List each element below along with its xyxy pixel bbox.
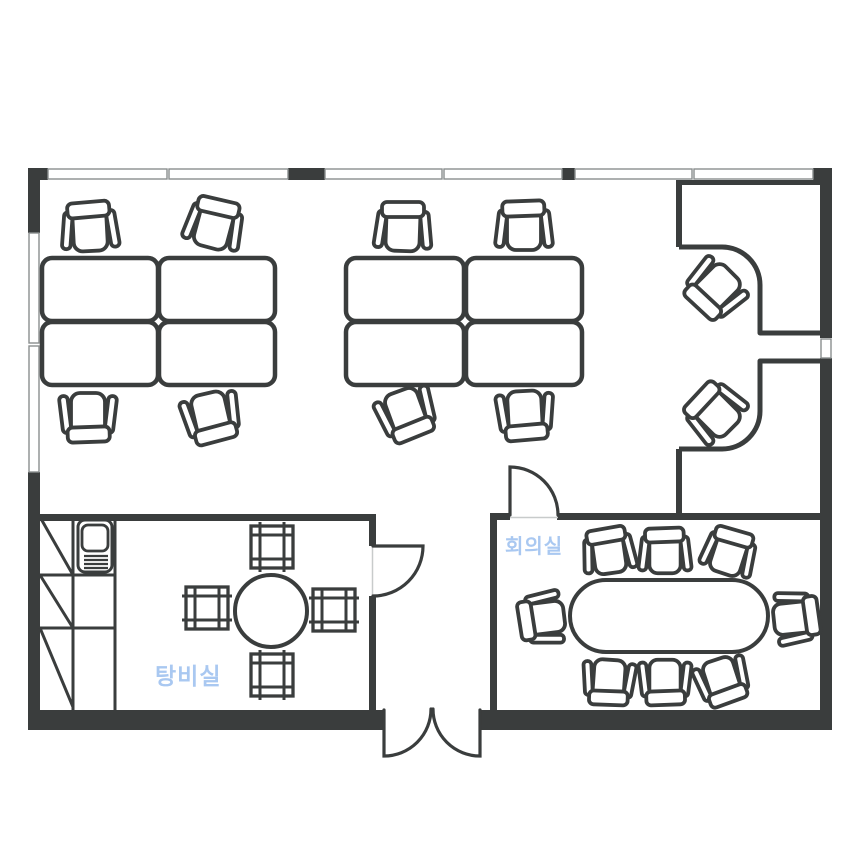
meeting-chair	[690, 651, 755, 711]
desk	[42, 258, 158, 321]
meeting-chair	[697, 521, 762, 581]
outer-wall-segment	[28, 710, 384, 730]
pantry-label: 탕비실	[155, 665, 221, 688]
door-swing	[433, 709, 480, 756]
desk	[346, 322, 464, 385]
desk	[159, 322, 275, 385]
inner-wall-segment	[369, 596, 376, 710]
floor-plan-page: 회의실 탕비실	[0, 0, 860, 860]
window-pane	[821, 339, 831, 358]
meeting-room-label: 회의실	[505, 537, 563, 557]
office-chair	[180, 192, 249, 255]
meeting-table	[570, 580, 768, 652]
square-chair-seat	[313, 589, 355, 631]
inner-wall-segment	[369, 514, 376, 546]
desk	[42, 322, 158, 385]
outer-wall-segment	[28, 472, 40, 730]
office-chair	[495, 390, 556, 443]
chair-backrest	[589, 690, 628, 705]
meeting-chair	[638, 660, 692, 706]
outer-wall-segment	[28, 168, 40, 233]
office-chair	[373, 200, 433, 252]
outer-wall-segment	[480, 710, 832, 730]
window-pane	[48, 169, 167, 179]
office-chair	[676, 373, 752, 449]
outer-wall-segment	[288, 168, 325, 180]
outer-wall-segment	[820, 168, 832, 338]
window-pane	[169, 169, 288, 179]
meeting-chair	[771, 589, 822, 647]
office-chair	[59, 200, 120, 253]
square-chair-seat	[251, 654, 293, 696]
sink-basin	[82, 525, 108, 551]
office-chair	[495, 200, 553, 250]
round-table	[235, 575, 307, 647]
office-chair	[676, 252, 752, 328]
office-chair	[178, 387, 246, 449]
cabinet-line	[40, 517, 73, 575]
door-swing	[510, 467, 558, 515]
door-swing	[384, 709, 431, 756]
chair-backrest	[505, 423, 548, 442]
desk	[346, 258, 464, 321]
square-chair	[251, 650, 293, 700]
door-swing	[373, 546, 423, 596]
inner-wall-segment	[676, 449, 682, 517]
window-pane	[444, 169, 562, 179]
office-chair	[59, 393, 117, 443]
window-pane	[694, 169, 813, 179]
inner-wall-segment	[682, 180, 820, 185]
square-chair-seat	[186, 587, 228, 629]
office-chair	[371, 381, 443, 448]
window-pane	[29, 346, 39, 472]
chair-backrest	[67, 426, 109, 442]
meeting-chair	[580, 658, 637, 707]
desk	[159, 258, 275, 321]
cabinet-line	[40, 575, 73, 628]
outer-wall-segment	[562, 168, 575, 180]
square-chair-seat	[251, 526, 293, 568]
chair-backrest	[645, 528, 684, 543]
meeting-chair	[579, 524, 639, 577]
meeting-chair	[638, 528, 692, 574]
inner-wall-segment	[676, 180, 682, 247]
inner-wall-segment	[557, 513, 820, 520]
square-chair	[309, 589, 359, 631]
window-pane	[325, 169, 442, 179]
chair-backrest	[67, 200, 110, 219]
outer-wall-segment	[820, 358, 832, 730]
window-pane	[575, 169, 692, 179]
inner-wall-segment	[490, 513, 497, 710]
chair-backrest	[802, 595, 821, 635]
window-pane	[29, 233, 39, 343]
desk	[466, 322, 582, 385]
chair-backrest	[382, 202, 424, 217]
square-chair	[182, 587, 232, 629]
chair-backrest	[502, 200, 544, 216]
meeting-chair	[515, 589, 567, 648]
chair-backrest	[646, 690, 685, 705]
desk	[466, 258, 582, 321]
floor-plan-svg	[0, 0, 860, 860]
square-chair	[251, 522, 293, 572]
cabinet-line	[40, 628, 73, 707]
